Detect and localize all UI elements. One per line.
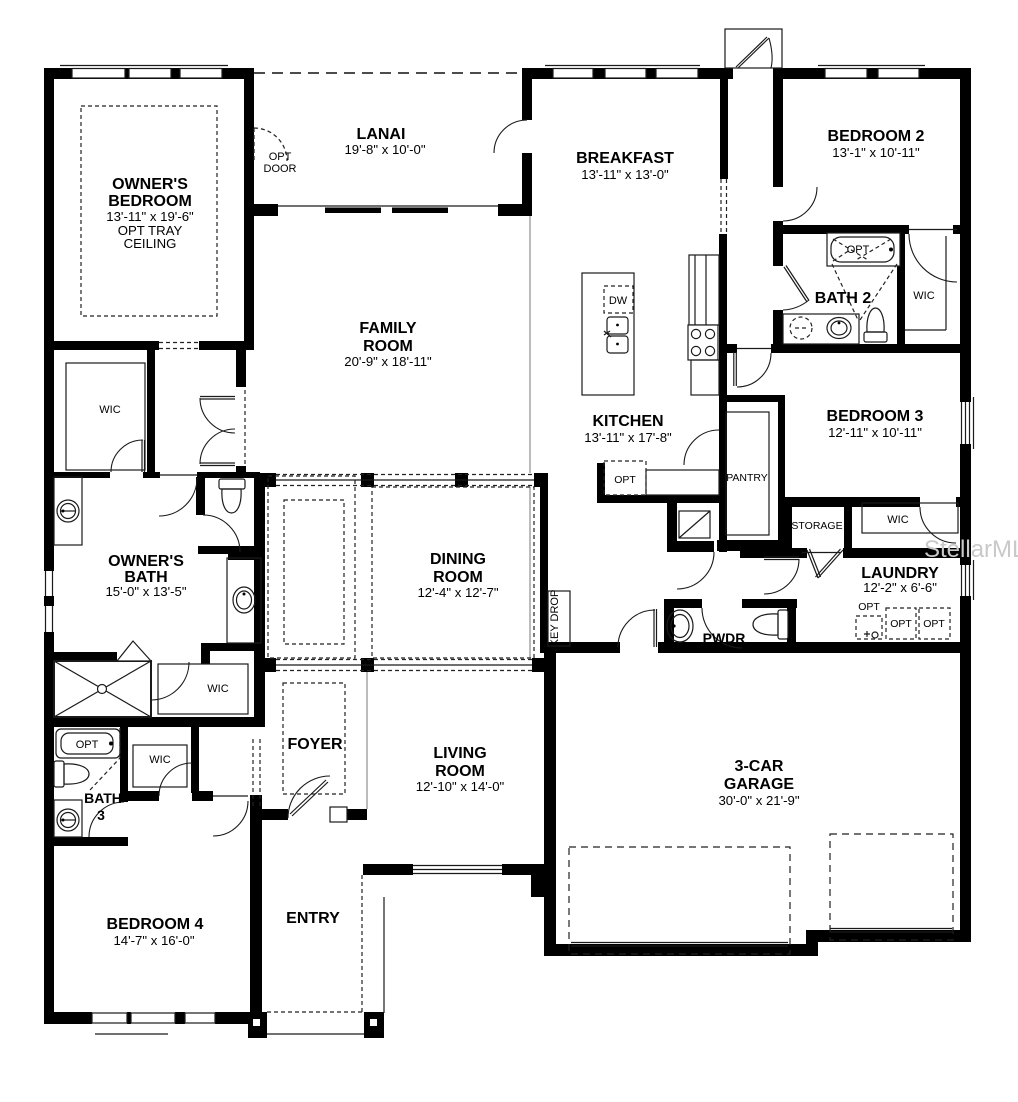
svg-text:13'-11" x 13'-0": 13'-11" x 13'-0" xyxy=(581,167,669,182)
svg-text:BATH 2: BATH 2 xyxy=(815,290,872,307)
svg-text:12'-4" x 12'-7": 12'-4" x 12'-7" xyxy=(417,585,498,600)
svg-text:WIC: WIC xyxy=(913,290,934,302)
svg-text:OWNER'S: OWNER'S xyxy=(108,553,184,570)
svg-text:OPT: OPT xyxy=(847,244,870,256)
svg-text:ROOM: ROOM xyxy=(363,338,413,355)
svg-text:OPT: OPT xyxy=(614,474,636,486)
svg-text:3: 3 xyxy=(97,807,105,823)
svg-text:WIC: WIC xyxy=(99,404,120,416)
svg-text:StellarMLS: StellarMLS xyxy=(924,536,1018,563)
svg-text:WIC: WIC xyxy=(207,683,228,695)
svg-text:20'-9" x 18'-11": 20'-9" x 18'-11" xyxy=(344,354,432,369)
svg-text:3-CAR: 3-CAR xyxy=(735,758,784,775)
svg-text:12'-10" x 14'-0": 12'-10" x 14'-0" xyxy=(416,779,505,794)
svg-text:OPT: OPT xyxy=(890,618,912,630)
svg-text:ENTRY: ENTRY xyxy=(286,910,340,927)
svg-text:PWDR: PWDR xyxy=(703,630,746,646)
svg-text:KEY DROP: KEY DROP xyxy=(549,590,561,647)
svg-text:OPT: OPT xyxy=(269,151,292,163)
svg-text:BEDROOM: BEDROOM xyxy=(108,193,192,210)
svg-text:DOOR: DOOR xyxy=(264,163,297,175)
svg-text:BATH: BATH xyxy=(84,790,122,806)
svg-text:FAMILY: FAMILY xyxy=(359,320,417,337)
svg-text:DW: DW xyxy=(609,295,628,307)
svg-text:30'-0" x 21'-9": 30'-0" x 21'-9" xyxy=(718,793,799,808)
svg-text:15'-0" x 13'-5": 15'-0" x 13'-5" xyxy=(105,584,186,599)
svg-text:OPT: OPT xyxy=(923,618,945,630)
svg-text:12'-2" x 6'-6": 12'-2" x 6'-6" xyxy=(863,580,937,595)
svg-text:CEILING: CEILING xyxy=(124,236,177,251)
svg-text:OWNER'S: OWNER'S xyxy=(112,176,188,193)
svg-text:LANAI: LANAI xyxy=(357,126,406,143)
svg-text:LIVING: LIVING xyxy=(433,745,486,762)
svg-text:OPT: OPT xyxy=(76,739,99,751)
svg-text:GARAGE: GARAGE xyxy=(724,776,795,793)
svg-text:WIC: WIC xyxy=(149,754,170,766)
svg-text:12'-11" x 10'-11": 12'-11" x 10'-11" xyxy=(828,425,922,440)
svg-text:ROOM: ROOM xyxy=(433,569,483,586)
svg-text:KITCHEN: KITCHEN xyxy=(592,413,663,430)
svg-text:WIC: WIC xyxy=(887,514,908,526)
svg-text:19'-8" x 10'-0": 19'-8" x 10'-0" xyxy=(344,142,425,157)
svg-text:13'-11" x 17'-8": 13'-11" x 17'-8" xyxy=(584,430,672,445)
svg-text:DINING: DINING xyxy=(430,551,486,568)
svg-text:14'-7" x 16'-0": 14'-7" x 16'-0" xyxy=(113,933,194,948)
svg-text:BEDROOM 4: BEDROOM 4 xyxy=(107,916,204,933)
svg-text:FOYER: FOYER xyxy=(287,736,343,753)
svg-text:PANTRY: PANTRY xyxy=(726,472,768,484)
svg-text:13'-1" x 10'-11": 13'-1" x 10'-11" xyxy=(832,145,920,160)
svg-text:ROOM: ROOM xyxy=(435,763,485,780)
svg-text:BEDROOM 2: BEDROOM 2 xyxy=(828,128,925,145)
svg-text:BEDROOM 3: BEDROOM 3 xyxy=(827,408,924,425)
svg-text:STORAGE: STORAGE xyxy=(791,520,842,532)
svg-text:BREAKFAST: BREAKFAST xyxy=(576,150,674,167)
svg-text:OPT: OPT xyxy=(858,601,880,613)
svg-text:13'-11" x 19'-6": 13'-11" x 19'-6" xyxy=(106,209,194,224)
